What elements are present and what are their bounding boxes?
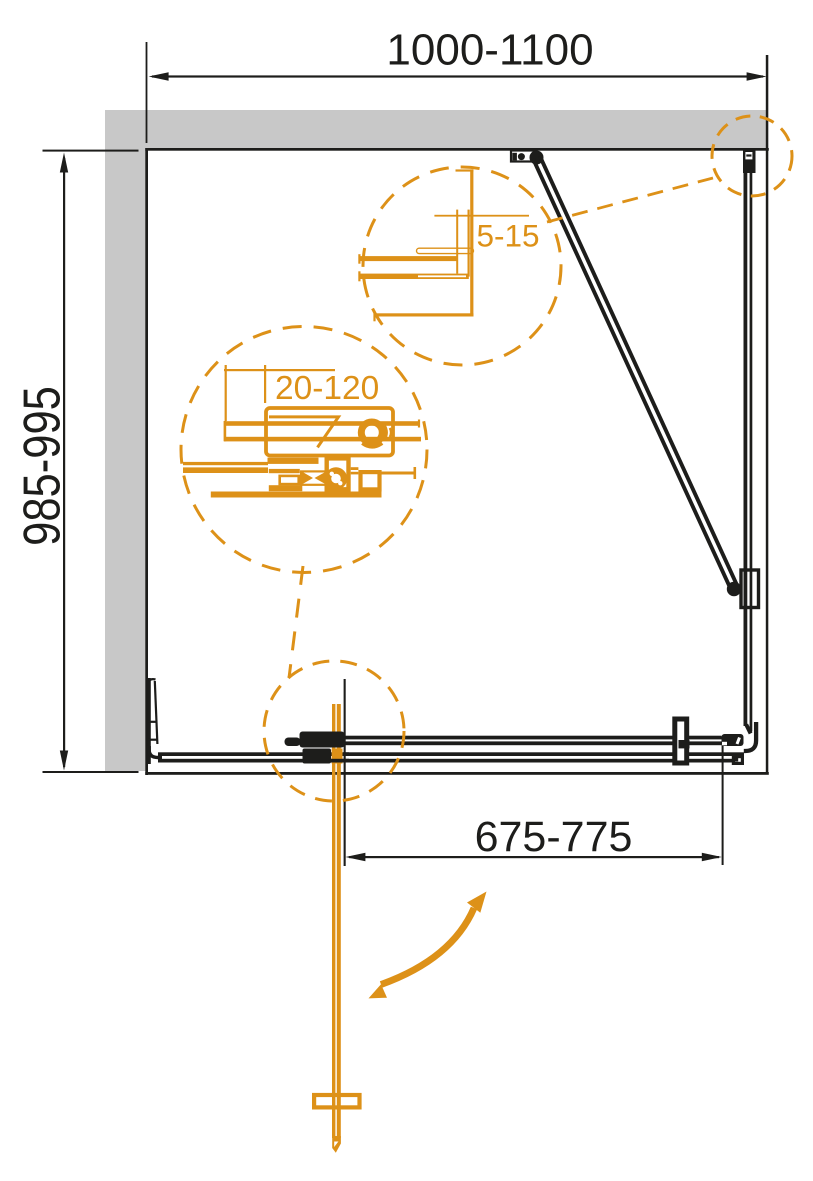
svg-text:5-15: 5-15 bbox=[477, 218, 540, 254]
svg-text:20-120: 20-120 bbox=[275, 370, 379, 407]
svg-text:675-775: 675-775 bbox=[475, 813, 633, 861]
svg-text:985-995: 985-995 bbox=[14, 386, 71, 546]
svg-text:1000-1100: 1000-1100 bbox=[386, 26, 593, 75]
